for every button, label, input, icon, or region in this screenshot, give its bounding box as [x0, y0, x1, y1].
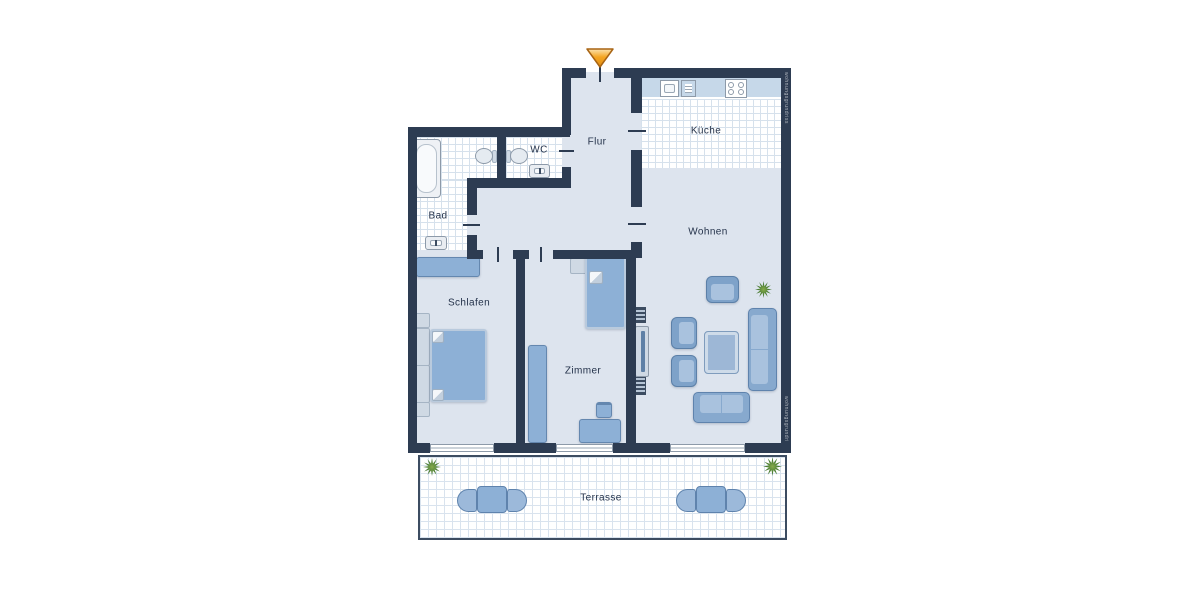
floor-plan: Bad WC Flur Küche Wohnen Schlafen Zimmer…	[0, 0, 1200, 600]
wall	[631, 77, 642, 113]
wall	[408, 127, 570, 137]
tv-sideboard-icon	[635, 326, 649, 377]
entrance-arrow-icon	[585, 47, 615, 69]
single-bed-icon	[585, 255, 626, 329]
wall	[467, 188, 477, 215]
door-marker	[463, 224, 480, 226]
window	[430, 444, 494, 452]
armchair-icon	[671, 355, 697, 387]
pillow-icon	[432, 389, 444, 401]
wall	[494, 443, 556, 453]
burner-icon	[728, 89, 734, 95]
room-label-wohnen: Wohnen	[688, 227, 727, 238]
wall	[516, 250, 525, 443]
wall	[613, 443, 670, 453]
coffee-table-icon	[704, 331, 739, 374]
dresser-icon	[416, 257, 480, 277]
bathtub-basin	[416, 144, 437, 193]
window	[556, 444, 613, 452]
door-marker	[559, 150, 574, 152]
room-label-terrasse: Terrasse	[580, 493, 622, 504]
seat	[679, 360, 694, 382]
terrace-table-icon	[696, 486, 726, 513]
watermark-text: wohnungsgrundriss	[783, 396, 789, 442]
room-label-schlafen: Schlafen	[448, 298, 490, 309]
desk-chair-icon	[596, 402, 612, 418]
armchair-icon	[671, 317, 697, 349]
terrace-chair-icon	[676, 489, 696, 512]
wardrobe-icon	[528, 345, 547, 443]
kitchen-sink-icon	[660, 80, 679, 97]
room-label-bad: Bad	[429, 211, 448, 222]
wall	[467, 235, 477, 250]
wall	[467, 178, 570, 188]
pillow-icon	[432, 331, 444, 343]
washbasin-icon	[529, 164, 550, 178]
wall	[631, 150, 642, 207]
seat	[679, 322, 694, 344]
tv-screen	[641, 331, 645, 372]
watermark-text: wohnungsgrundriss	[783, 72, 789, 124]
door-marker	[628, 130, 646, 132]
cushions	[700, 395, 743, 413]
desk-icon	[579, 419, 621, 443]
wall	[562, 77, 571, 135]
tap-icon	[539, 168, 541, 174]
tap-icon	[435, 240, 437, 246]
washbasin-icon	[425, 236, 447, 250]
sofa-icon	[748, 308, 777, 391]
wall	[408, 127, 417, 453]
door-marker	[497, 247, 499, 262]
wall	[467, 250, 483, 259]
burner-icon	[738, 89, 744, 95]
burner-icon	[738, 82, 744, 88]
toilet-icon	[475, 148, 493, 164]
seat	[711, 284, 734, 300]
toilet-icon	[510, 148, 528, 164]
wall	[408, 443, 430, 453]
terrace-chair-icon	[457, 489, 477, 512]
stove-icon	[725, 79, 747, 98]
dishwasher-icon	[681, 80, 696, 97]
room-label-wc: WC	[530, 145, 547, 156]
door-marker	[628, 223, 646, 225]
armchair-icon	[706, 276, 739, 303]
wall	[497, 137, 506, 180]
burner-icon	[728, 82, 734, 88]
wall	[745, 443, 791, 453]
window	[670, 444, 745, 452]
cushions	[751, 315, 768, 384]
room-label-kueche: Küche	[691, 126, 721, 137]
wall	[626, 250, 636, 443]
door-marker	[540, 247, 542, 262]
sofa-icon	[693, 392, 750, 423]
room-label-zimmer: Zimmer	[565, 366, 601, 377]
room-label-flur: Flur	[588, 137, 607, 148]
wall	[631, 242, 642, 258]
wall	[553, 250, 631, 259]
terrace-table-icon	[477, 486, 507, 513]
pillow-icon	[589, 271, 603, 284]
